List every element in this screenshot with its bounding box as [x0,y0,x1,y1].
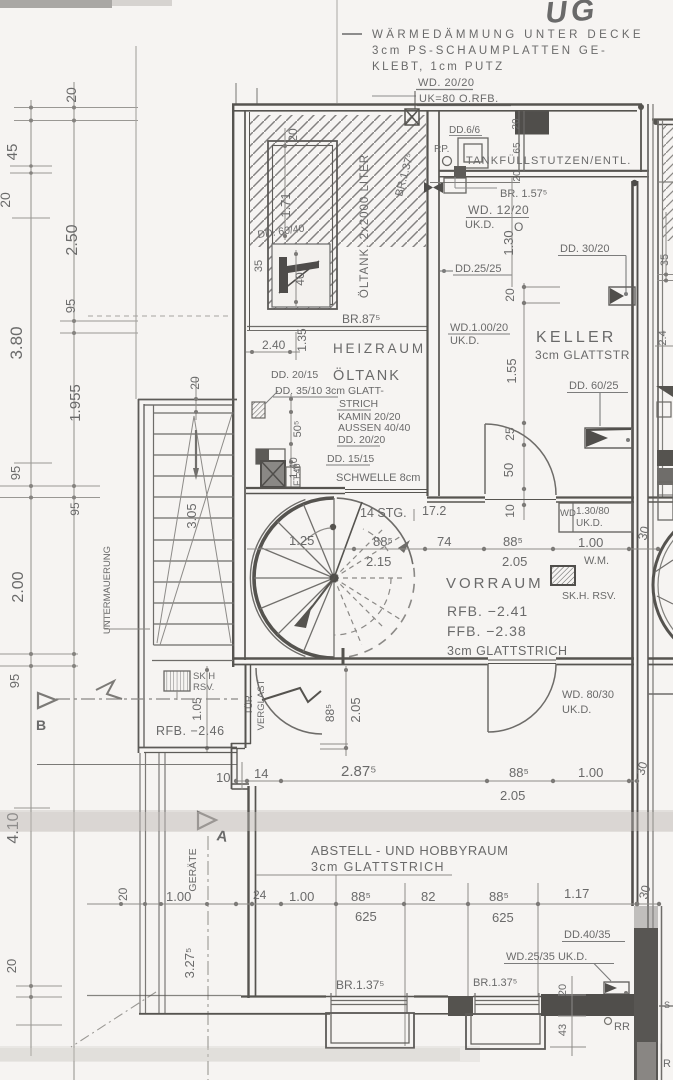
svg-text:2.50: 2.50 [64,224,81,255]
svg-text:1.30: 1.30 [501,230,516,255]
svg-text:VORRAUM: VORRAUM [446,575,544,592]
svg-text:1.00: 1.00 [289,889,314,904]
svg-text:88⁵: 88⁵ [373,534,393,549]
svg-text:88⁵: 88⁵ [351,889,371,904]
svg-text:WÄRMEDÄMMUNG UNTER DECKE: WÄRMEDÄMMUNG UNTER DECKE [372,29,644,41]
svg-text:95: 95 [68,502,82,516]
svg-text:UG: UG [544,0,599,30]
svg-text:AUSSEN 40/40: AUSSEN 40/40 [338,422,411,434]
svg-text:2.00: 2.00 [10,571,27,602]
svg-text:STRICH: STRICH [339,398,378,410]
svg-text:B: B [36,717,46,733]
svg-text:BR.1.37⁵: BR.1.37⁵ [336,978,384,992]
svg-text:UK.D.: UK.D. [465,219,494,231]
svg-text:50: 50 [501,463,516,477]
svg-text:50⁵: 50⁵ [292,421,304,438]
svg-text:2.4: 2.4 [657,330,669,345]
svg-text:74: 74 [437,534,451,549]
svg-text:20: 20 [63,87,79,103]
svg-text:20: 20 [512,170,523,182]
svg-text:RFB. −2.46: RFB. −2.46 [156,724,225,738]
svg-text:SK.H. RSV.: SK.H. RSV. [562,590,616,602]
svg-text:WD: WD [560,508,576,519]
svg-text:I: I [660,1042,663,1052]
svg-text:SCHWELLE 8cm: SCHWELLE 8cm [336,472,420,484]
svg-text:82: 82 [421,889,435,904]
svg-text:88⁵: 88⁵ [509,765,529,780]
svg-text:1.55: 1.55 [504,358,519,383]
svg-text:KELLER: KELLER [536,329,617,346]
svg-text:35: 35 [659,254,671,266]
svg-text:ÖLTANK: ÖLTANK [333,366,401,384]
svg-text:ÖLTANK. 2x2000 LITER: ÖLTANK. 2x2000 LITER [359,154,371,298]
svg-text:65: 65 [512,142,523,154]
svg-text:43: 43 [557,1024,569,1036]
svg-text:3cm GLATTSTRICH: 3cm GLATTSTRICH [311,860,445,874]
svg-text:20: 20 [511,118,522,130]
svg-text:625: 625 [492,910,514,925]
svg-text:VERGLAST: VERGLAST [256,679,267,730]
svg-text:2.15: 2.15 [366,554,391,569]
svg-text:ABSTELL - UND HOBBYRAUM: ABSTELL - UND HOBBYRAUM [311,843,509,858]
svg-text:DD. 15/15: DD. 15/15 [327,453,374,465]
svg-text:3cm PS-SCHAUMPLATTEN GE-: 3cm PS-SCHAUMPLATTEN GE- [372,45,608,57]
svg-text:1.955: 1.955 [67,384,84,422]
svg-text:3.05: 3.05 [184,503,199,528]
svg-text:2.87⁵: 2.87⁵ [341,763,376,780]
svg-text:20: 20 [116,887,130,901]
svg-text:3.27⁵: 3.27⁵ [182,948,197,979]
svg-text:RP.: RP. [434,144,449,155]
svg-text:2.05: 2.05 [500,788,525,803]
svg-text:14: 14 [254,766,268,781]
svg-text:2.40: 2.40 [262,338,286,352]
svg-text:DD. 20/20: DD. 20/20 [338,434,385,446]
svg-text:WD.25/35 UK.D.: WD.25/35 UK.D. [506,951,587,963]
svg-text:3cm GLATTSTRICH: 3cm GLATTSTRICH [447,644,567,658]
svg-text:1.25: 1.25 [289,533,314,548]
svg-text:R: R [663,1058,671,1070]
svg-text:DD. 30/20: DD. 30/20 [560,243,610,255]
svg-text:10: 10 [503,504,517,518]
svg-text:1.05: 1.05 [190,697,204,721]
svg-text:1.35: 1.35 [295,328,309,352]
svg-text:UK.D.: UK.D. [562,704,591,716]
svg-text:95: 95 [7,674,22,688]
svg-text:1.17: 1.17 [564,886,589,901]
svg-text:W.M.: W.M. [584,555,609,567]
svg-text:20: 20 [4,959,19,973]
svg-text:UK.D.: UK.D. [576,518,603,529]
svg-text:SK.H: SK.H [193,671,215,682]
svg-text:UK.D.: UK.D. [450,335,479,347]
svg-text:UK=80 O.RFB.: UK=80 O.RFB. [419,93,499,105]
svg-text:95: 95 [63,299,78,313]
svg-text:625: 625 [355,909,377,924]
svg-text:1.00: 1.00 [166,889,191,904]
svg-text:3cm GLATTSTR.: 3cm GLATTSTR. [535,348,634,362]
svg-text:24: 24 [253,888,267,902]
svg-text:RSV.: RSV. [193,682,214,693]
svg-text:WD. 12/20: WD. 12/20 [468,203,529,217]
svg-text:45: 45 [4,144,21,161]
svg-text:35: 35 [253,260,265,272]
svg-text:20: 20 [557,984,569,996]
svg-text:14 STG.: 14 STG. [360,506,407,520]
svg-text:S: S [664,1000,670,1010]
svg-text:1.00: 1.00 [578,765,603,780]
svg-text:DD.6/6: DD.6/6 [449,125,481,136]
svg-text:88⁵: 88⁵ [503,534,523,549]
svg-text:2.05: 2.05 [348,697,363,722]
svg-text:DD. 60/25: DD. 60/25 [569,380,619,392]
svg-text:FT.40: FT.40 [292,463,302,486]
svg-text:20: 20 [188,376,202,390]
svg-text:GERÄTE: GERÄTE [187,848,199,891]
svg-text:DD. 20/15: DD. 20/15 [271,369,318,381]
svg-text:DD.25/25: DD.25/25 [455,263,501,275]
svg-text:BR.1.37⁵: BR.1.37⁵ [473,977,517,989]
svg-text:BR. 1.57⁵: BR. 1.57⁵ [500,188,547,200]
svg-text:HEIZRAUM: HEIZRAUM [333,341,426,356]
svg-text:TANKFÜLLSTUTZEN/ENTL.: TANKFÜLLSTUTZEN/ENTL. [466,155,632,167]
svg-text:20: 20 [286,128,300,142]
svg-text:95: 95 [8,466,23,480]
svg-text:2.05: 2.05 [502,554,527,569]
svg-text:DD.40/35: DD.40/35 [564,929,610,941]
svg-text:BR.87⁵: BR.87⁵ [342,312,380,326]
svg-text:3.80: 3.80 [7,326,26,359]
svg-text:RFB. −2.41: RFB. −2.41 [447,603,528,619]
svg-text:17.2: 17.2 [422,504,446,518]
svg-text:40: 40 [293,272,307,286]
svg-text:20: 20 [503,288,517,302]
svg-text:1.71: 1.71 [278,192,293,217]
svg-text:FFB. −2.38: FFB. −2.38 [447,623,527,639]
svg-text:WD. 20/20: WD. 20/20 [418,77,474,89]
svg-text:1.00: 1.00 [578,535,603,550]
svg-text:WD.1.00/20: WD.1.00/20 [450,322,508,334]
svg-text:1.30/80: 1.30/80 [576,506,610,517]
svg-text:88⁵: 88⁵ [489,889,509,904]
svg-text:10: 10 [216,770,230,785]
svg-text:WD. 80/30: WD. 80/30 [562,689,614,701]
svg-text:88⁵: 88⁵ [323,704,337,722]
svg-text:KLEBT, 1cm PUTZ: KLEBT, 1cm PUTZ [372,61,505,73]
svg-text:20: 20 [0,192,13,208]
svg-text:RR: RR [614,1021,630,1033]
